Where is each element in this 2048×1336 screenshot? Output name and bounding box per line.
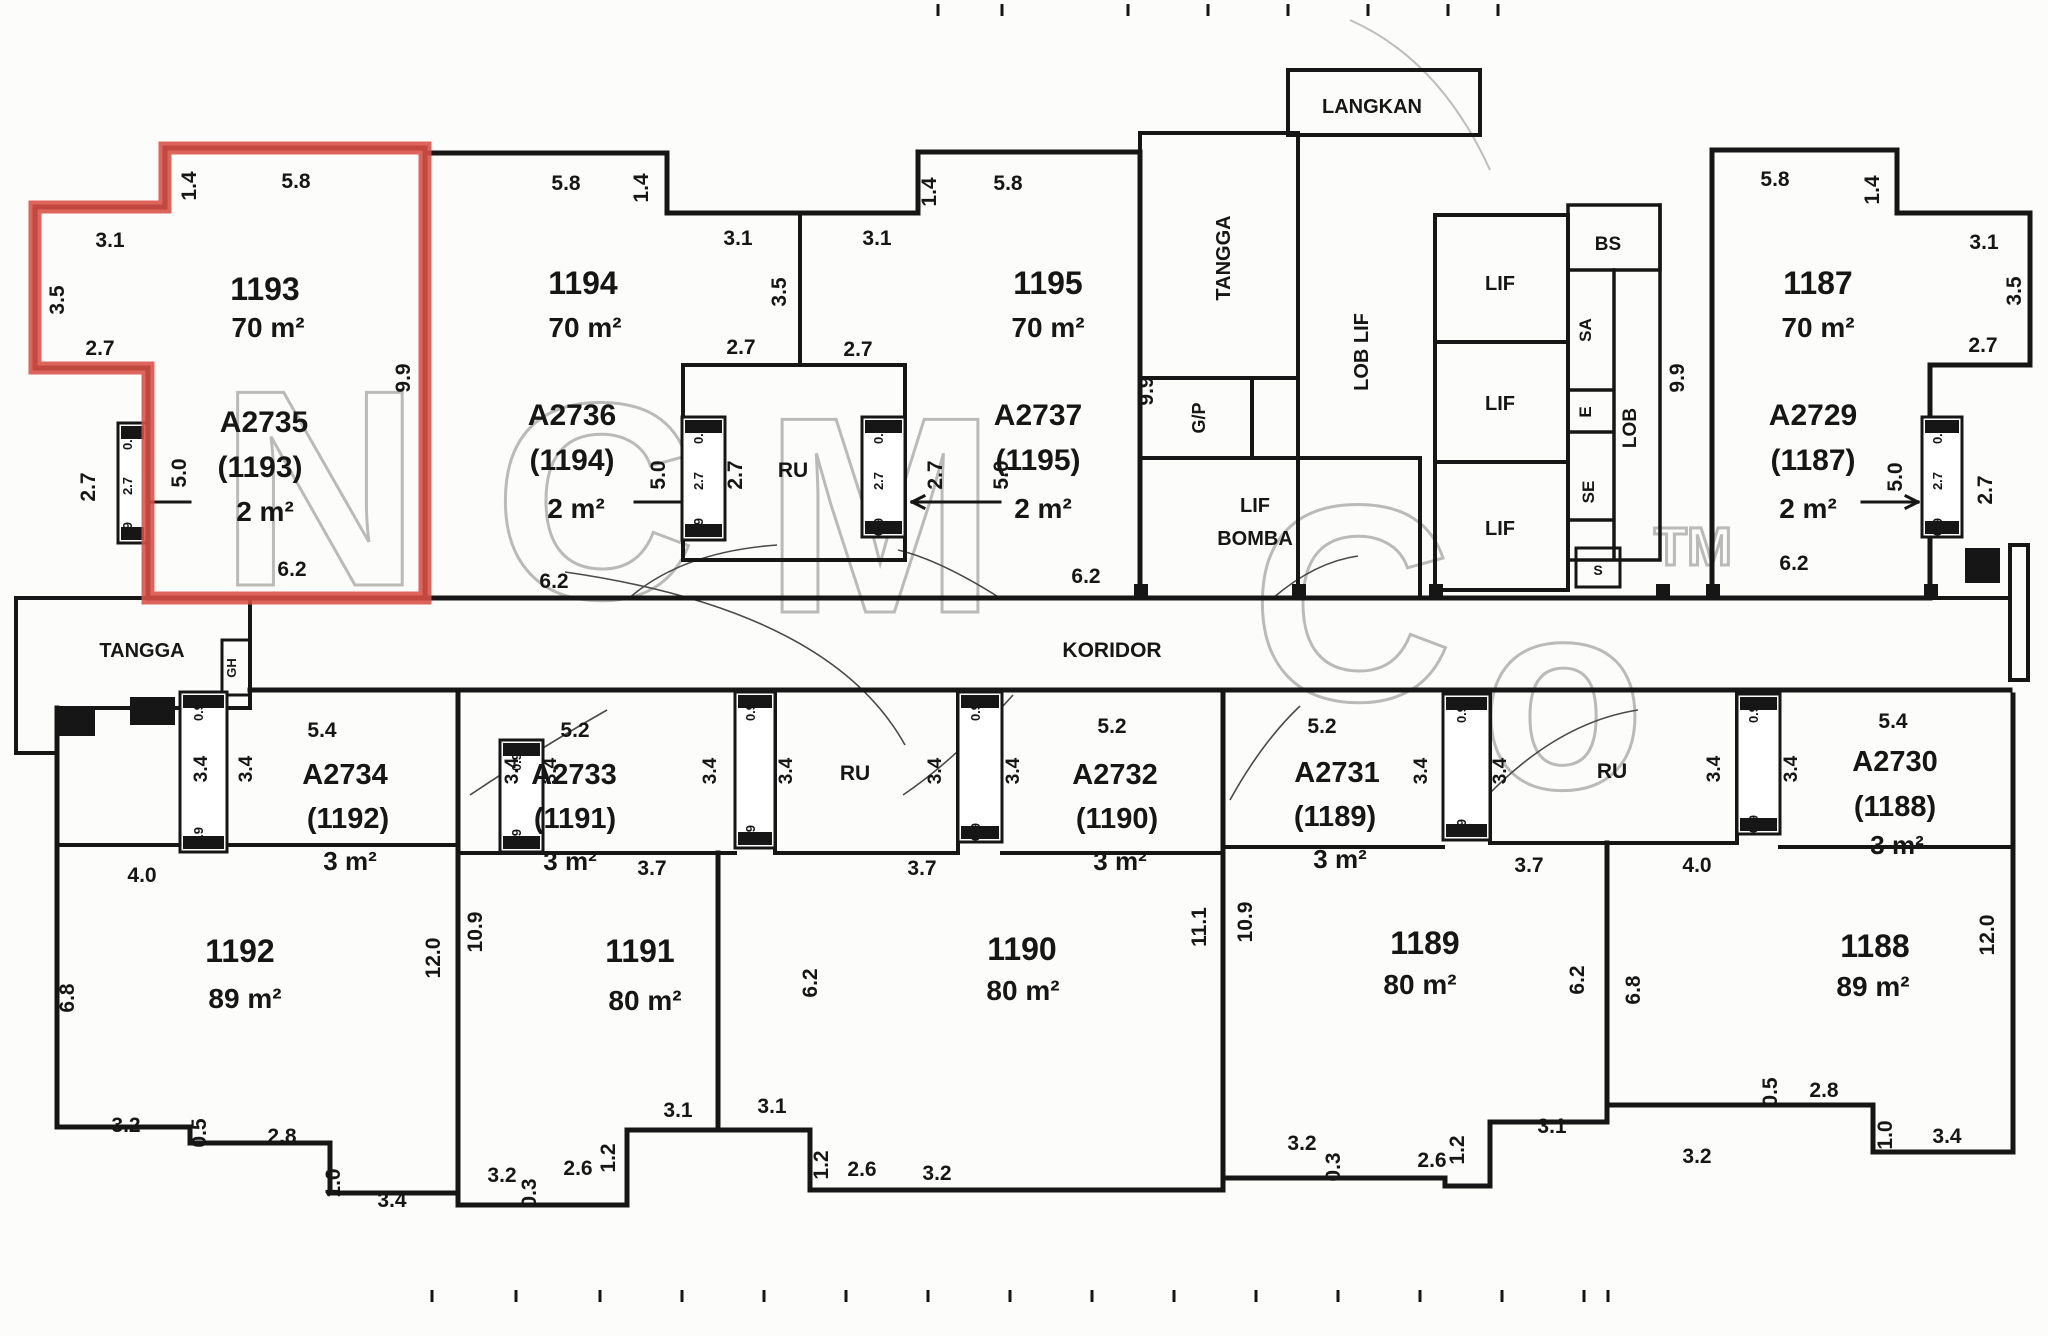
dim-label: 1.0: [322, 1168, 345, 1197]
store-a2732-parent: (1190): [1076, 803, 1158, 835]
room-lif-bomba-line2: BOMBA: [1217, 528, 1293, 550]
dim-label: 3.7: [637, 857, 666, 880]
dim-label: 2.7: [871, 472, 886, 490]
dim-label: 5.8: [551, 172, 581, 195]
dim-label: 1.2: [1446, 1135, 1469, 1164]
store-a2736-area: 2 m²: [547, 493, 605, 524]
watermark-letter: C: [1251, 448, 1453, 760]
dim-label: 6.2: [1566, 965, 1589, 994]
dim-label: 6.8: [1622, 975, 1645, 1005]
dim-label: 2.6: [1417, 1149, 1446, 1172]
dim-label: 3.1: [862, 227, 892, 250]
solid-block: [1429, 584, 1443, 598]
dim-label: 3.2: [1287, 1132, 1316, 1155]
dim-label: 6.2: [277, 558, 306, 581]
room-bs: BS: [1595, 234, 1621, 255]
dim-label: 2.7: [1930, 472, 1945, 490]
dim-label: 5.8: [993, 172, 1023, 195]
dim-label: 0.9: [1454, 705, 1469, 723]
watermark-arc: [1350, 20, 1490, 170]
dim-label: 3.4: [236, 755, 257, 782]
dim-label: 2.7: [1968, 334, 1997, 357]
store-a2733-area: 3 m²: [543, 846, 597, 876]
solid-block: [130, 697, 175, 725]
dim-label: 6.8: [56, 983, 79, 1013]
room-gh: GH: [224, 658, 239, 678]
dim-label: 6.2: [1779, 552, 1808, 575]
dim-label: 1.4: [918, 177, 941, 207]
unit-1193-number: 1193: [230, 271, 299, 307]
unit-1189-number: 1189: [1390, 925, 1459, 961]
dim-label: 3.7: [1514, 854, 1543, 877]
dim-label: 5.4: [307, 719, 337, 742]
room-gp: G/P: [1189, 402, 1209, 433]
solid-block: [1134, 584, 1148, 598]
room-sa: SA: [1576, 318, 1595, 342]
room-tangga-upper: TANGGA: [1213, 215, 1235, 300]
store-a2730-parent: (1188): [1854, 791, 1936, 823]
watermark-letter: TM: [1654, 517, 1732, 577]
dim-label: 2.7: [726, 336, 755, 359]
dim-label: 2.7: [843, 338, 872, 361]
dim-label: 5.0: [168, 458, 191, 487]
dim-label: 3.2: [487, 1164, 516, 1187]
dim-label: 0.9: [1930, 426, 1945, 444]
dim-label: 5.0: [1884, 462, 1907, 491]
store-a2735-area: 2 m²: [236, 496, 294, 527]
dim-label: 0.9: [871, 518, 886, 536]
dim-label: 5.2: [1307, 715, 1336, 738]
dim-label: 12.0: [1976, 915, 1999, 956]
store-a2731-area: 3 m²: [1313, 844, 1367, 874]
dim-label: 3.4: [776, 757, 797, 784]
dim-label: 3.1: [723, 227, 753, 250]
dim-label: 0.5: [1759, 1077, 1782, 1107]
dim-label: 2.8: [267, 1125, 297, 1148]
dim-label: 0.9: [1746, 705, 1761, 723]
room-lif-1: LIF: [1485, 273, 1515, 295]
unit-1195-number: 1195: [1013, 265, 1082, 301]
dim-label: 2.7: [77, 472, 100, 501]
room-se: SE: [1579, 481, 1598, 504]
dim-label: 2.7: [724, 460, 747, 489]
dim-label: 2.8: [1809, 1079, 1839, 1102]
room-s: S: [1593, 562, 1602, 578]
unit-1188-area: 89 m²: [1836, 971, 1909, 1002]
dim-label: 12.0: [422, 938, 445, 979]
dim-label: 10.9: [464, 912, 487, 953]
store-a2731-id: A2731: [1294, 757, 1379, 789]
unit-1191-area: 80 m²: [608, 985, 681, 1016]
room-lif-bomba-line1: LIF: [1240, 495, 1270, 517]
dim-label: 3.4: [700, 757, 721, 784]
store-a2736-parent: (1194): [529, 444, 614, 477]
dim-label: 3.1: [757, 1095, 787, 1118]
dim-label: 3.4: [925, 757, 946, 784]
dim-label: 3.5: [46, 285, 69, 315]
store-a2732-area: 3 m²: [1093, 846, 1147, 876]
unit-1188-number: 1188: [1840, 928, 1909, 964]
dim-label: 3.4: [1003, 757, 1024, 784]
unit-1192-number: 1192: [205, 933, 274, 969]
wall-sa-e-se-lob: [1568, 205, 1660, 560]
dim-label: 5.2: [1097, 715, 1126, 738]
dim-label: 3.4: [540, 757, 561, 784]
dim-label: 3.2: [1682, 1145, 1711, 1168]
labels: 119370 m²A2735(1193)2 m²119470 m²A2736(1…: [46, 96, 2026, 1212]
dim-label: 1.4: [178, 171, 201, 201]
floor-plan-page: NCMCoTM: [0, 0, 2048, 1336]
unit-1192-area: 89 m²: [208, 983, 281, 1014]
dim-label: 3.2: [111, 1114, 140, 1137]
dim-label: 4.0: [127, 864, 156, 887]
dim-label: 3.1: [95, 229, 125, 252]
dim-label: 0.9: [120, 522, 135, 540]
dim-label: 3.4: [1932, 1125, 1962, 1148]
store-a2736-id: A2736: [528, 399, 616, 432]
dim-label: 5.2: [560, 719, 589, 742]
room-ru-bottom-right: RU: [1597, 760, 1627, 783]
dim-label: 3.1: [663, 1099, 693, 1122]
unit-1194-number: 1194: [548, 265, 618, 301]
dim-label: 0.9: [1746, 815, 1761, 833]
dim-label: 3.5: [2003, 276, 2026, 306]
dim-label: 9.9: [1666, 363, 1689, 392]
dim-label: 3.4: [1490, 757, 1511, 784]
dim-label: 6.2: [799, 968, 822, 997]
floor-plan-canvas: NCMCoTM: [0, 0, 2048, 1336]
room-ru-top: RU: [778, 459, 808, 482]
dim-label: 0.9: [509, 753, 524, 771]
dim-label: 5.0: [990, 460, 1013, 489]
dim-label: 9.9: [1135, 376, 1158, 405]
store-a2737-area: 2 m²: [1014, 493, 1072, 524]
dim-label: 11.1: [1188, 907, 1211, 947]
dim-label: 1.4: [1861, 175, 1884, 205]
store-a2730-area: 3 m²: [1870, 830, 1924, 860]
dim-label: 0.9: [871, 426, 886, 444]
dim-label: 0.3: [518, 1178, 541, 1207]
store-a2734-parent: (1192): [307, 803, 389, 835]
unit-1190-number: 1190: [987, 931, 1056, 967]
dim-label: 1.4: [630, 173, 653, 203]
store-a2735-id: A2735: [220, 406, 308, 439]
room-lif-2: LIF: [1485, 393, 1515, 415]
wall-unit-1187: [1712, 150, 2030, 598]
unit-1190-area: 80 m²: [986, 975, 1059, 1006]
room-langkan: LANGKAN: [1322, 96, 1422, 118]
dim-label: 0.9: [191, 827, 206, 845]
room-lif-3: LIF: [1485, 518, 1515, 540]
dim-label: 2.6: [563, 1157, 592, 1180]
store-a2732-id: A2732: [1072, 759, 1157, 791]
dim-label: 3.4: [191, 755, 212, 782]
dim-label: 3.1: [1969, 231, 1999, 254]
dim-label: 0.9: [968, 703, 983, 721]
dim-label: 10.9: [1234, 902, 1257, 943]
dim-label: 1.2: [810, 1150, 833, 1179]
store-a2729-area: 2 m²: [1779, 493, 1837, 524]
dim-label: 3.4: [377, 1189, 407, 1212]
solid-block: [1706, 584, 1720, 598]
dim-label: 0.9: [509, 829, 524, 847]
dim-label: 6.2: [539, 570, 568, 593]
dim-label: 5.8: [1760, 168, 1790, 191]
solid-block: [1965, 548, 2000, 583]
dim-label: 9.9: [392, 363, 415, 392]
dim-label: 0.9: [1454, 819, 1469, 837]
dim-label: 0.9: [120, 432, 135, 450]
store-a2735-parent: (1193): [217, 451, 302, 484]
dim-label: 3.4: [1411, 757, 1432, 784]
dim-label: 3.5: [768, 277, 791, 307]
dim-label: 2.7: [691, 472, 706, 490]
dim-label: 0.9: [743, 825, 758, 843]
store-a2734-id: A2734: [302, 759, 387, 791]
store-a2730-id: A2730: [1852, 746, 1937, 778]
dim-label: 2.7: [924, 460, 947, 489]
unit-1195-area: 70 m²: [1011, 312, 1084, 343]
store-a2734-area: 3 m²: [323, 846, 377, 876]
room-e: E: [1576, 406, 1595, 417]
dim-label: 6.2: [1071, 565, 1100, 588]
wall-corridor-right-end: [2010, 545, 2028, 680]
room-lob: LOB: [1620, 408, 1641, 448]
dim-label: 2.7: [120, 477, 135, 495]
store-a2733-parent: (1191): [534, 803, 616, 835]
dim-label: 3.1: [1537, 1115, 1567, 1138]
solid-block: [1656, 584, 1670, 598]
dim-label: 3.4: [1781, 755, 1802, 782]
store-a2737-id: A2737: [994, 399, 1082, 432]
unit-1187-number: 1187: [1783, 265, 1852, 301]
dim-label: 5.0: [647, 460, 670, 489]
store-a2729-parent: (1187): [1770, 444, 1855, 477]
room-koridor: KORIDOR: [1062, 639, 1161, 662]
dim-label: 1.0: [1874, 1120, 1897, 1149]
dim-label: 0.9: [1930, 518, 1945, 536]
dim-label: 4.0: [1682, 854, 1711, 877]
dim-label: 0.9: [743, 703, 758, 721]
dim-label: 2.7: [85, 337, 114, 360]
dim-label: 3.7: [907, 857, 936, 880]
dim-label: 0.9: [191, 703, 206, 721]
room-lob-lif: LOB LIF: [1351, 313, 1373, 391]
solid-block: [57, 708, 95, 736]
solid-block: [1292, 584, 1306, 598]
dim-label: 5.4: [1878, 710, 1908, 733]
unit-1194-area: 70 m²: [548, 312, 621, 343]
dim-label: 3.4: [1704, 755, 1725, 782]
unit-1189-area: 80 m²: [1383, 969, 1456, 1000]
store-a2731-parent: (1189): [1294, 801, 1376, 833]
solid-block: [1924, 584, 1938, 598]
room-ru-bottom-left: RU: [840, 762, 870, 785]
unit-1191-number: 1191: [605, 933, 674, 969]
dim-label: 1.2: [597, 1143, 620, 1172]
arrow: [1862, 496, 1918, 508]
dim-label: 0.9: [691, 426, 706, 444]
dim-label: 0.5: [188, 1118, 211, 1148]
room-tangga-left: TANGGA: [99, 640, 184, 662]
dim-label: 2.7: [1974, 475, 1997, 504]
unit-1187-area: 70 m²: [1781, 312, 1854, 343]
dim-label: 0.9: [968, 823, 983, 841]
dim-label: 0.3: [1322, 1152, 1345, 1181]
dim-label: 2.6: [847, 1158, 876, 1181]
store-a2729-id: A2729: [1769, 399, 1857, 432]
dim-label: 5.8: [281, 170, 311, 193]
dim-label: 0.9: [691, 518, 706, 536]
dim-label: 3.2: [922, 1162, 951, 1185]
unit-1193-area: 70 m²: [231, 312, 304, 343]
